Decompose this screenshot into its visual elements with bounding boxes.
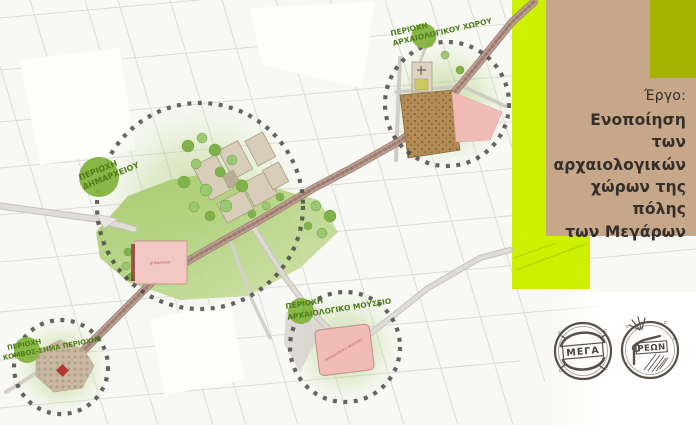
- museum-building: ΑΡΧΑΙΟΛΟΓΙΚΟ ΜΟΥΣΕΙΟ: [314, 324, 374, 376]
- svg-text:c: c: [673, 336, 676, 342]
- coin-reon: ΡΕΩΝ cc cc: [622, 317, 678, 378]
- coin-reon-text: ΡΕΩΝ: [637, 342, 666, 354]
- svg-text:c: c: [664, 320, 667, 326]
- svg-text:c: c: [558, 330, 561, 336]
- coin-mega: ΜΕΓΑ cc cc: [555, 323, 611, 379]
- city-hall-building: ΔΗΜΑΡΧΕΙΟ: [131, 241, 187, 284]
- dolphin-icon: [563, 358, 604, 370]
- project-title-line: Ενοποίηση των: [552, 109, 686, 154]
- accent-block: [650, 0, 696, 78]
- project-title-line: χώρων της πόλης: [552, 176, 686, 221]
- poster-page: ΔΗΜΑΡΧΕΙΟ ΑΡΧΑΙΟΛΟΓΙΚΟ ΜΟΥΣΕΙΟ Π: [0, 0, 696, 425]
- megara-coins-logo: ΜΕΓΑ cc cc ΡΕΩΝ cc cc: [546, 306, 696, 394]
- project-title-line: αρχαιολογικών: [552, 154, 686, 176]
- svg-text:c: c: [605, 366, 608, 372]
- svg-text:c: c: [604, 328, 607, 334]
- svg-text:c: c: [626, 324, 629, 330]
- project-label: Έργο:: [552, 88, 686, 104]
- church: [412, 62, 432, 92]
- svg-text:c: c: [559, 368, 562, 374]
- city-hall-label: ΔΗΜΑΡΧΕΙΟ: [150, 261, 171, 266]
- coin-hatching: [644, 354, 668, 372]
- svg-text:c: c: [625, 362, 628, 368]
- project-title-line: των Μεγάρων: [552, 221, 686, 243]
